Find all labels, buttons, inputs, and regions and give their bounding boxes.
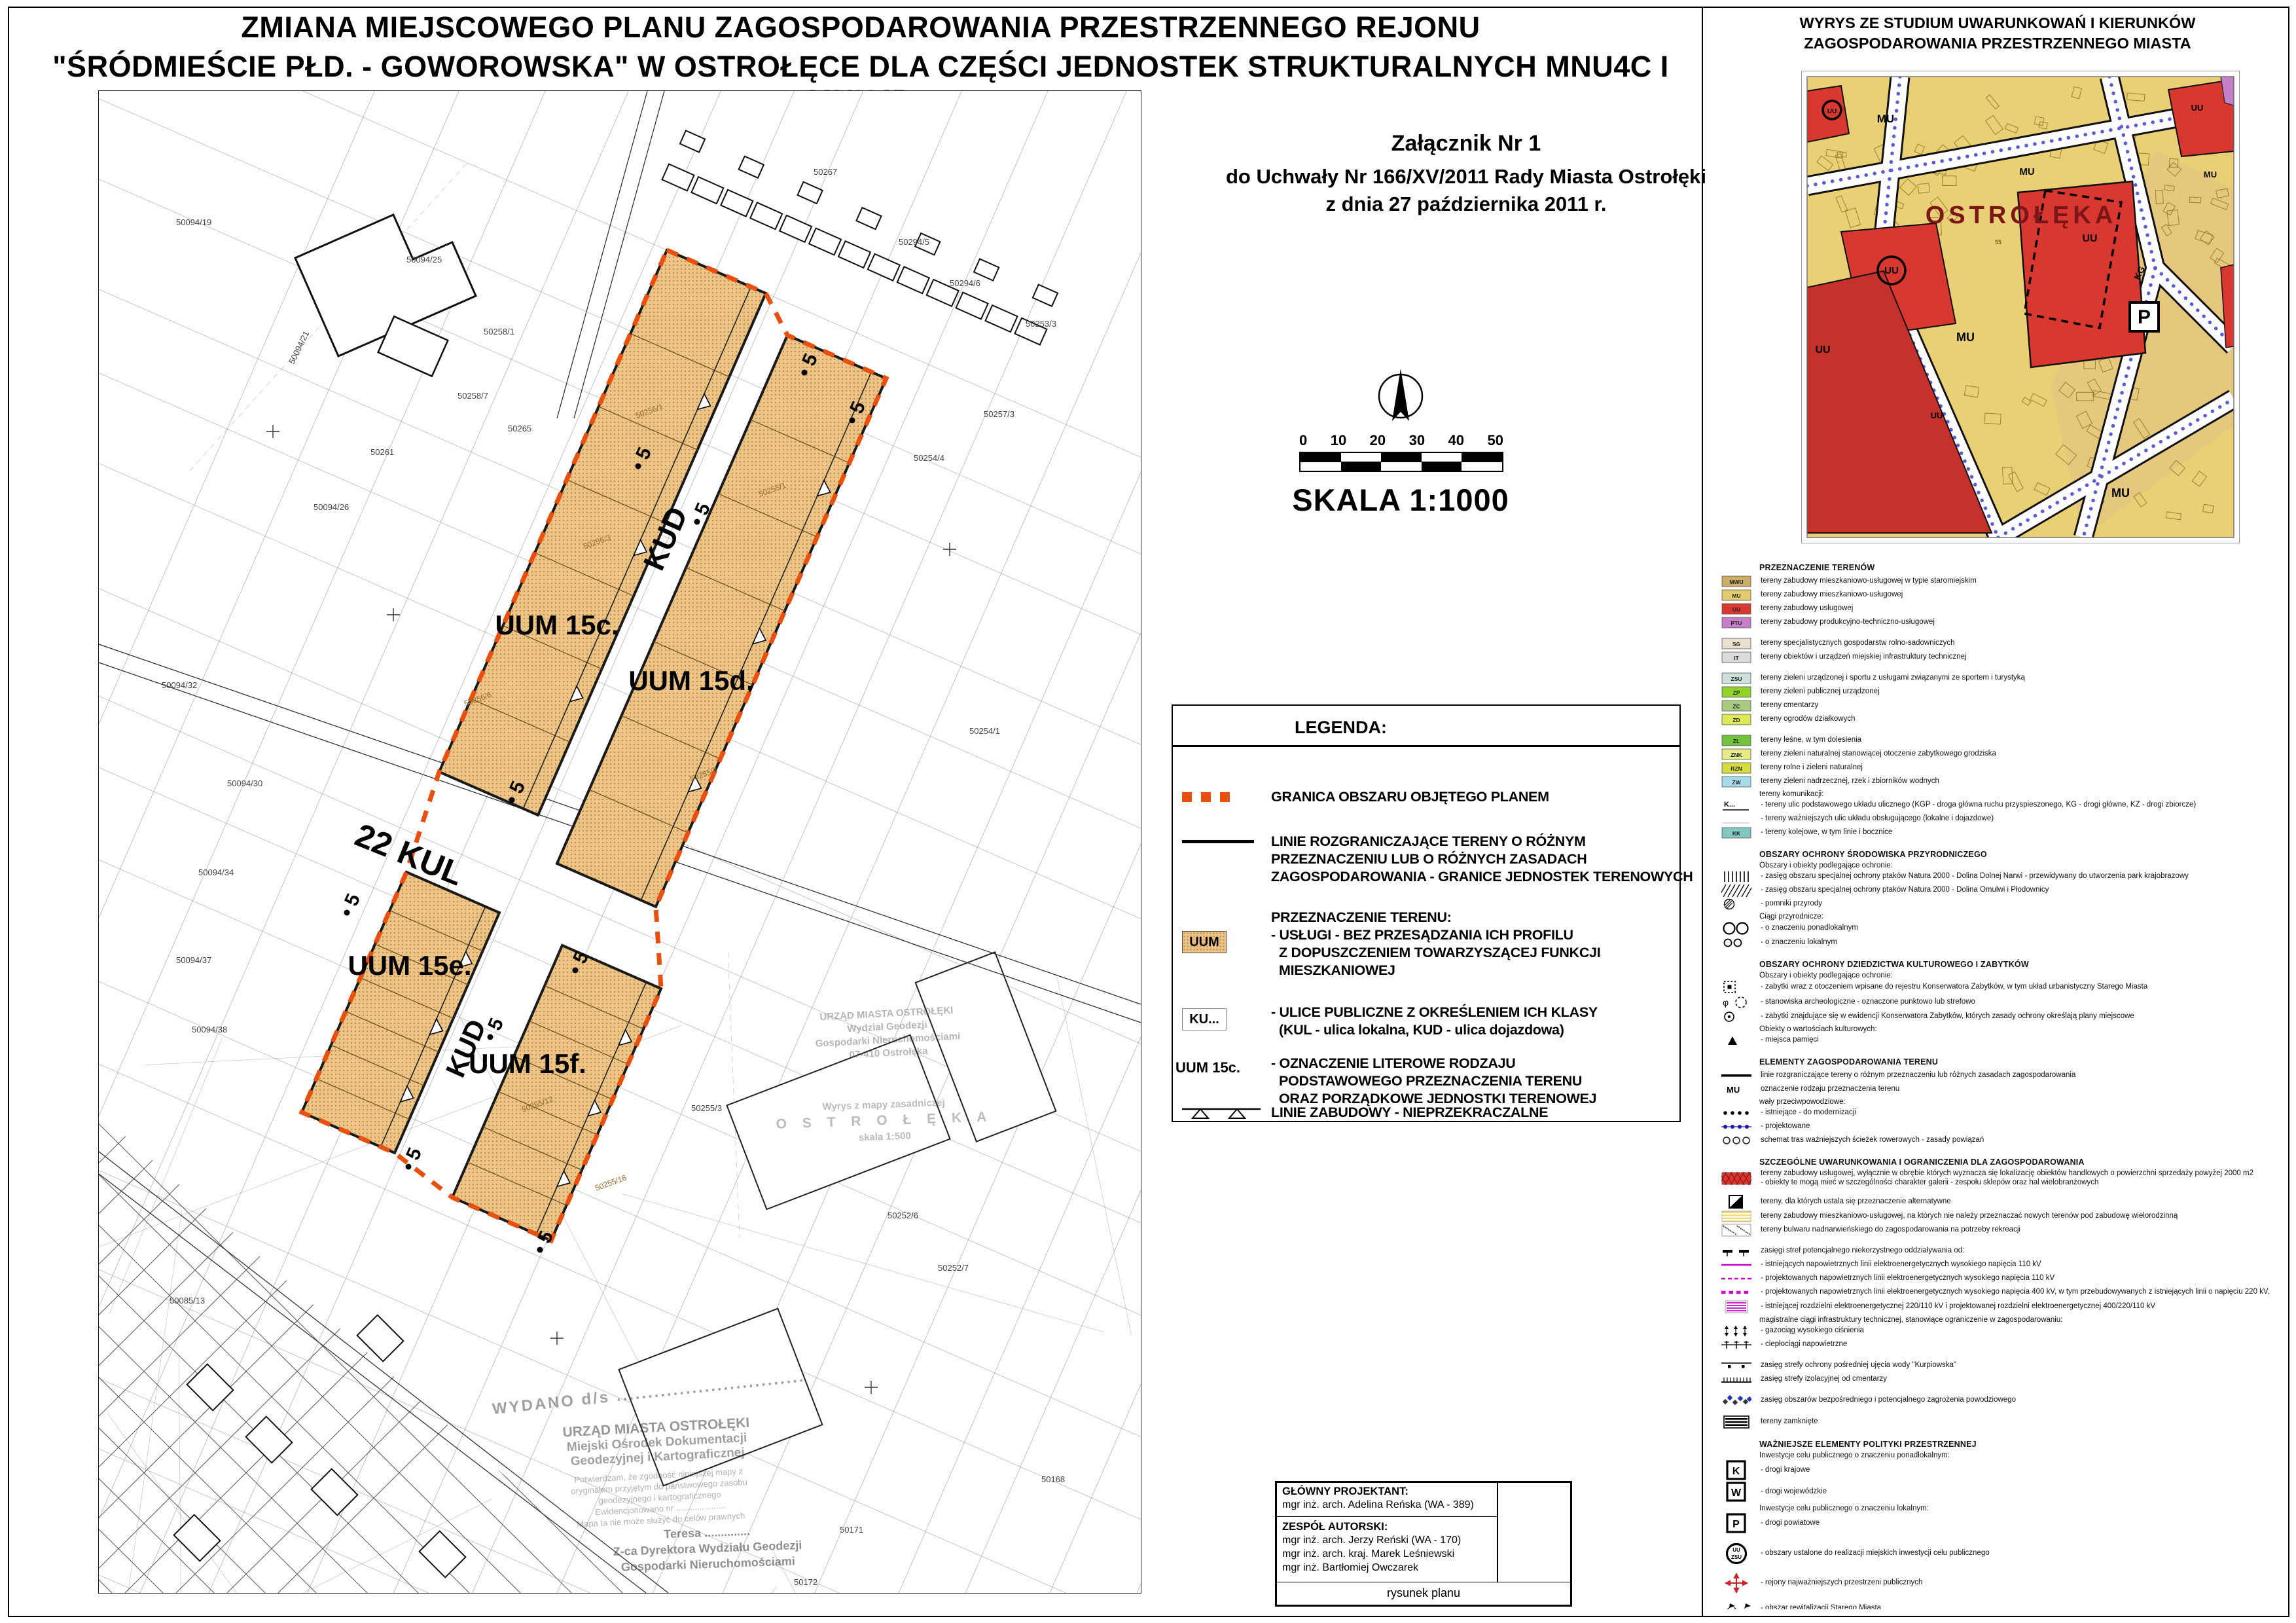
studium-legend-heading: PRZEZNACZENIE TERENÓW: [1759, 563, 2291, 572]
parcel-number: 50094/25: [406, 255, 442, 264]
box-icon: ZD: [1720, 713, 1754, 726]
studium-legend-note: Inwestycje celu publicznego o znaczeniu …: [1759, 1504, 2291, 1512]
studium-legend-label: - pomniki przyrody: [1754, 900, 2291, 909]
studium-legend-label: zasięg strefy ochrony pośredniej ujęcia …: [1754, 1361, 2291, 1370]
svg-text:IT: IT: [1734, 655, 1739, 661]
studium-legend-item: zasięgi stref potencjalnego niekorzystne…: [1720, 1245, 2291, 1258]
studium-legend-item: - tereny ważniejszych ulic układu obsług…: [1720, 812, 2291, 826]
svg-text:W: W: [1731, 1487, 1742, 1499]
title-line-1: ZMIANA MIEJSCOWEGO PLANU ZAGOSPODAROWANI…: [39, 10, 1682, 45]
studium-legend-item: schemat tras ważniejszych ścieżek rowero…: [1720, 1134, 2291, 1147]
designer-box-divider: [1497, 1483, 1498, 1582]
studium-legend-item: ZSUtereny zieleni urządzonej i sportu z …: [1720, 672, 2291, 685]
author-name: mgr inż. arch. Jerzy Reński (WA - 170): [1282, 1533, 1492, 1547]
svg-text:ZL: ZL: [1733, 738, 1740, 744]
scale-bar-segments: [1299, 452, 1503, 472]
parcel-number: 50094/38: [192, 1025, 227, 1034]
studium-legend-item: - projektowane: [1720, 1120, 2291, 1133]
studium-legend-item: MWUtereny zabudowy mieszkaniowo-usługowe…: [1720, 575, 2291, 588]
studium-legend-item: - o znaczeniu lokalnym: [1720, 936, 2291, 949]
parcel-number: 50094/30: [227, 778, 262, 788]
dividing-line-icon: [1182, 840, 1264, 843]
studium-legend-label: tereny zabudowy mieszkaniowo-usługowej w…: [1754, 577, 2291, 586]
cbig-icon: [1720, 921, 1754, 936]
evid-icon: [1720, 1010, 1754, 1023]
author-team-title: ZESPÓŁ AUTORSKI:: [1282, 1521, 1492, 1533]
legend-item-ku: - ULICE PUBLICZNE Z OKREŚLENIEM ICH KLAS…: [1271, 1004, 1598, 1039]
legend-line: - USŁUGI - BEZ PRZESĄDZANIA ICH PROFILU: [1271, 926, 1600, 944]
dotsb-icon: [1720, 1106, 1754, 1120]
studium-legend-item: zasięg strefy izolacyjnej od cmentarzy: [1720, 1373, 2291, 1386]
studium-legend-label: tereny leśne, w tym dolesienia: [1754, 736, 2291, 745]
studium-legend-item: - zabytki znajdujące się w ewidencji Kon…: [1720, 1010, 2291, 1023]
studium-legend-label: tereny zieleni urządzonej i sportu z usł…: [1754, 674, 2291, 683]
scale-bar: 0 10 20 30 40 50: [1299, 432, 1503, 472]
studium-legend-heading: ELEMENTY ZAGOSPODAROWANIA TERENU: [1759, 1057, 2291, 1067]
flood-icon: [1720, 1394, 1754, 1407]
studium-legend-label: - drogi wojewódzkie: [1754, 1487, 2291, 1497]
studium-legend-label: zasięg strefy izolacyjnej od cmentarzy: [1754, 1375, 2291, 1384]
ku-street-icon: KU...: [1182, 1008, 1264, 1030]
studium-legend-note: magistralne ciągi infrastruktury technic…: [1759, 1316, 2291, 1324]
studium-legend-item: ZPtereny zieleni publicznej urządzonej: [1720, 685, 2291, 699]
attachment-note: Załącznik Nr 1 do Uchwały Nr 166/XV/2011…: [1185, 131, 1748, 218]
svg-text:SG: SG: [1732, 641, 1741, 647]
studium-legend-label: - tereny ulic podstawowego układu uliczn…: [1754, 801, 2291, 810]
parcel-number: 50265: [508, 424, 531, 433]
parcel-number: 50252/7: [938, 1263, 969, 1273]
designer-box: GŁÓWNY PROJEKTANT: mgr inż. arch. Adelin…: [1275, 1481, 1572, 1607]
studium-map-label: 55: [1995, 239, 2001, 246]
studium-legend-label: - istniejących napowietrznych linii elek…: [1754, 1260, 2291, 1269]
svg-text:K: K: [1732, 1466, 1740, 1477]
kline-icon: K...: [1720, 799, 1754, 812]
zone-label: UUM 15e.: [348, 950, 471, 981]
studium-legend-item: - zasięg obszaru specjalnej ochrony ptak…: [1720, 884, 2291, 897]
legend-line: (KUL - ulica lokalna, KUD - ulica dojazd…: [1271, 1021, 1598, 1039]
svg-text:MU: MU: [1727, 1085, 1740, 1095]
legend-line: MIESZKANIOWEJ: [1271, 962, 1600, 979]
box-icon: MU: [1720, 589, 1754, 602]
mbdash-icon: [1720, 1286, 1754, 1299]
building-line-icon: [1182, 1104, 1264, 1121]
studium-legend-label: - rejony najważniejszych przestrzeni pub…: [1754, 1578, 2291, 1588]
studium-legend-label: linie rozgraniczające tereny o różnym pr…: [1754, 1071, 2291, 1080]
studium-legend-item: P- drogi powiatowe: [1720, 1513, 2291, 1534]
studium-legend-label: tereny zieleni publicznej urządzonej: [1754, 687, 2291, 697]
studium-legend-item: - obszar rewitalizacji Starego Miasta: [1720, 1601, 2291, 1609]
zone-code-label: UUM 15c.: [1175, 1059, 1240, 1076]
pomnik-icon: [1720, 898, 1754, 911]
studium-legend-label: - obszar rewitalizacji Starego Miasta: [1754, 1604, 2291, 1609]
vbars-icon: [1720, 870, 1754, 883]
legend-title: LEGENDA:: [1295, 718, 1387, 738]
studium-map-label: MU: [2111, 486, 2130, 500]
legend-line: LINIE ROZGRANICZAJĄCE TERENY O RÓŻNYM: [1271, 833, 1693, 850]
svg-text:UU: UU: [1732, 1547, 1740, 1553]
arch-icon: φ: [1720, 995, 1754, 1010]
svg-text:ZP: ZP: [1733, 689, 1740, 696]
box-icon: ZW: [1720, 775, 1754, 788]
box-icon: ZL: [1720, 734, 1754, 747]
studium-legend-heading: OBSZARY OCHRONY DZIEDZICTWA KULTUROWEGO …: [1759, 960, 2291, 969]
studium-legend-label: tereny zieleni naturalnej stanowiącej ot…: [1754, 750, 2291, 759]
studium-map-label: MU: [1956, 331, 1975, 344]
heat-icon: [1720, 1338, 1754, 1351]
parcel-number: 50294/5: [899, 237, 929, 247]
csmall-icon: [1720, 936, 1754, 949]
studium-legend-label: - zabytki znajdujące się w ewidencji Kon…: [1754, 1012, 2291, 1021]
studium-legend-item: K...- tereny ulic podstawowego układu ul…: [1720, 799, 2291, 812]
author-name: mgr inż. arch. kraj. Marek Leśniewski: [1282, 1547, 1492, 1561]
chief-designer-title: GŁÓWNY PROJEKTANT:: [1282, 1486, 1492, 1498]
author-name: mgr inż. Bartłomiej Owczarek: [1282, 1561, 1492, 1575]
studium-legend-label: - gazociąg wysokiego ciśnienia: [1754, 1326, 2291, 1336]
attachment-line-3: z dnia 27 października 2011 r.: [1185, 191, 1748, 218]
parcel-number: 50257/3: [984, 409, 1014, 419]
zone-uum-15e: [302, 872, 499, 1153]
parcel-number: 50261: [370, 447, 394, 457]
scale-tick: 30: [1409, 432, 1425, 449]
boxletter-icon: W: [1720, 1482, 1754, 1503]
studium-legend-item: ITtereny obiektów i urządzeń miejskiej i…: [1720, 651, 2291, 664]
legend-item-uum: PRZEZNACZENIE TERENU: - USŁUGI - BEZ PRZ…: [1271, 909, 1600, 979]
studium-legend: PRZEZNACZENIE TERENÓWMWUtereny zabudowy …: [1720, 553, 2291, 1609]
studium-legend-label: tereny rolne i zieleni naturalnej: [1754, 763, 2291, 773]
box-icon: SG: [1720, 637, 1754, 650]
chief-designer: GŁÓWNY PROJEKTANT: mgr inż. arch. Adelin…: [1277, 1483, 1497, 1517]
mline-icon: [1720, 1258, 1754, 1271]
parcel-number: 50172: [794, 1577, 817, 1587]
studium-legend-item: K- drogi krajowe: [1720, 1460, 2291, 1481]
legend-divider: [1173, 745, 1679, 747]
mdash-icon: [1720, 1272, 1754, 1285]
box-icon: UU: [1720, 602, 1754, 615]
setback-distance-marker: 5: [691, 500, 715, 519]
studium-legend-note: Obszary i obiekty podlegające ochronie:: [1759, 862, 2291, 869]
box-icon: PTU: [1720, 616, 1754, 629]
studium-map-label: UU: [2191, 103, 2204, 113]
studium-legend-item: PTUtereny zabudowy produkcyjno-techniczn…: [1720, 616, 2291, 629]
parcel-number: 50094/26: [314, 502, 349, 512]
svg-text:φ: φ: [1723, 997, 1729, 1008]
studium-legend-item: - projektowanych napowietrznych linii el…: [1720, 1286, 2291, 1299]
svg-text:ZW: ZW: [1732, 779, 1741, 786]
parcel-number: 50252/6: [888, 1211, 918, 1220]
box-icon: ZSU: [1720, 672, 1754, 685]
studium-legend-label: - projektowane: [1754, 1122, 2291, 1131]
thline-icon: [1720, 1069, 1754, 1082]
gas-icon: [1720, 1324, 1754, 1338]
boxletter-icon: P: [1720, 1513, 1754, 1534]
studium-legend-item: RZNtereny rolne i zieleni naturalnej: [1720, 761, 2291, 775]
studium-legend-item: MUtereny zabudowy mieszkaniowo-usługowej: [1720, 589, 2291, 602]
svg-text:KK: KK: [1732, 830, 1741, 837]
zone-label: UUM 15d.: [628, 665, 753, 696]
parcel-number: 50254/1: [969, 726, 1000, 736]
scale-tick: 50: [1487, 432, 1503, 449]
box-icon: MWU: [1720, 575, 1754, 588]
box-icon: ZP: [1720, 685, 1754, 699]
parcel-number: 50254/4: [914, 453, 944, 463]
redhatch-icon: [1720, 1172, 1754, 1185]
studium-legend-label: tereny obiektów i urządzeń miejskiej inf…: [1754, 653, 2291, 662]
scale-tick: 0: [1299, 432, 1307, 449]
zone-code-icon: UUM 15c.: [1175, 1059, 1257, 1076]
studium-legend-label: - ciepłociągi napowietrzne: [1754, 1340, 2291, 1349]
studium-title-line-2: ZAGOSPODAROWANIA PRZESTRZENNEGO MIASTA: [1713, 33, 2282, 54]
parcel-number: 50255/3: [691, 1103, 722, 1113]
studium-title: WYRYS ZE STUDIUM UWARUNKOWAŃ I KIERUNKÓW…: [1713, 13, 2282, 54]
studium-map-label: MU: [2019, 166, 2034, 177]
studium-legend-label: oznaczenie rodzaju przeznaczenia terenu: [1754, 1085, 2291, 1094]
waterline-icon: [1720, 1359, 1754, 1372]
studium-legend-label: - drogi krajowe: [1754, 1466, 2291, 1475]
studium-legend-label: tereny specjalistycznych gospodarstw rol…: [1754, 639, 2291, 648]
svg-text:PTU: PTU: [1731, 620, 1742, 627]
studium-map-label: OSTROŁĘKA: [1926, 202, 2117, 229]
svg-text:UU: UU: [1732, 606, 1740, 613]
studium-legend-label: - obszary ustalone do realizacji miejski…: [1754, 1549, 2291, 1558]
zone-label: UUM 15f.: [469, 1048, 586, 1079]
studium-legend-item: - o znaczeniu ponadlokalnym: [1720, 921, 2291, 936]
closed-icon: [1720, 1415, 1754, 1429]
studium-legend-item: - gazociąg wysokiego ciśnienia: [1720, 1324, 2291, 1338]
ystripes-icon: [1720, 1210, 1754, 1223]
legend-item-building-line: LINIE ZABUDOWY - NIEPRZEKRACZALNE: [1271, 1104, 1548, 1122]
studium-legend-label: tereny cmentarzy: [1754, 701, 2291, 710]
studium-legend-item: tereny zamknięte: [1720, 1415, 2291, 1429]
tri-icon: [1720, 1034, 1754, 1047]
studium-legend-item: - rejony najważniejszych przestrzeni pub…: [1720, 1573, 2291, 1593]
studium-legend-label: - projektowanych napowietrznych linii el…: [1754, 1288, 2291, 1297]
scale-tick: 40: [1448, 432, 1464, 449]
zone-uum-15f: [452, 945, 661, 1241]
studium-legend-item: ZWtereny zieleni nadrzecznej, rzek i zbi…: [1720, 775, 2291, 788]
altsq-icon: [1720, 1195, 1754, 1209]
studium-legend-label: - projektowanych napowietrznych linii el…: [1754, 1274, 2291, 1283]
legend-line: PRZEZNACZENIU LUB O RÓŻNYCH ZASADACH: [1271, 850, 1693, 868]
studium-legend-item: - zasięg obszaru specjalnej ochrony ptak…: [1720, 870, 2291, 883]
box-icon: ZNK: [1720, 748, 1754, 761]
zone-label: UUM 15c.: [495, 610, 619, 640]
studium-legend-item: MUoznaczenie rodzaju przeznaczenia teren…: [1720, 1083, 2291, 1096]
parcel-number: 50094/34: [198, 867, 234, 877]
studium-legend-label: tereny ogrodów działkowych: [1754, 715, 2291, 724]
studium-legend-heading: OBSZARY OCHRONY ŚRODOWISKA PRZYRODNICZEG…: [1759, 850, 2291, 859]
parcel-number: 50258/7: [457, 391, 488, 401]
plan-map-canvas: 50094/1950094/2550094/2150094/2650094/32…: [99, 91, 1141, 1593]
studium-legend-note: tereny komunikacji:: [1759, 790, 2291, 798]
legend-line: ZAGOSPODAROWANIA - GRANICE JEDNOSTEK TER…: [1271, 868, 1693, 886]
dotsq-icon: [1720, 980, 1754, 994]
panel-divider: [1702, 7, 1703, 1616]
author-team: ZESPÓŁ AUTORSKI: mgr inż. arch. Jerzy Re…: [1277, 1518, 1497, 1581]
cemline-icon: [1720, 1373, 1754, 1386]
dbars-icon: [1720, 884, 1754, 897]
studium-legend-item: ZLtereny leśne, w tym dolesienia: [1720, 734, 2291, 747]
scale-tick: 10: [1331, 432, 1346, 449]
plan-sheet: ZMIANA MIEJSCOWEGO PLANU ZAGOSPODAROWANI…: [0, 0, 2296, 1623]
uum-swatch: UUM: [1182, 931, 1227, 953]
studium-legend-item: - projektowanych napowietrznych linii el…: [1720, 1272, 2291, 1285]
studium-map-label: MU: [2204, 170, 2217, 179]
studium-legend-item: ZNKtereny zieleni naturalnej stanowiącej…: [1720, 748, 2291, 761]
studium-legend-item: - zabytki wraz z otoczeniem wpisane do r…: [1720, 980, 2291, 994]
studium-map-label: UU: [2082, 233, 2097, 244]
studium-legend-label: tereny zabudowy mieszkaniowo-usługowej, …: [1754, 1212, 2291, 1221]
svg-text:MWU: MWU: [1729, 579, 1743, 585]
studium-map-label: UU: [1827, 108, 1837, 115]
ku-swatch: KU...: [1182, 1008, 1227, 1030]
legend-line: Z DOPUSZCZENIEM TOWARZYSZĄCEJ FUNKCJI: [1271, 944, 1600, 962]
svg-text:ZSU: ZSU: [1731, 676, 1742, 682]
parcel-number: 50255/16: [594, 1173, 628, 1192]
studium-map-canvas: MUMUMUMUMUUUUUUUUUOSTROŁĘKAKGUUUUP55: [1802, 71, 2239, 543]
studium-legend-note: Inwestycje celu publicznego o znaczeniu …: [1759, 1451, 2291, 1459]
box-icon: RZN: [1720, 761, 1754, 775]
parcel-number: 50085/13: [170, 1296, 205, 1305]
legend-line: - OZNACZENIE LITEROWE RODZAJU: [1271, 1055, 1596, 1072]
studium-legend-item: - istniejących napowietrznych linii elek…: [1720, 1258, 2291, 1271]
parcel-number: 50253/3: [1026, 319, 1056, 329]
studium-legend-label: - miejsca pamięci: [1754, 1036, 2291, 1045]
studium-title-line-1: WYRYS ZE STUDIUM UWARUNKOWAŃ I KIERUNKÓW: [1713, 13, 2282, 33]
blankline-icon: [1720, 812, 1754, 826]
dottex-icon: [1720, 1224, 1754, 1237]
bike-icon: [1720, 1134, 1754, 1147]
studium-legend-label: tereny, dla których ustala się przeznacz…: [1754, 1197, 2291, 1207]
studium-legend-item: UUtereny zabudowy usługowej: [1720, 602, 2291, 615]
studium-map-label: P: [2138, 306, 2151, 328]
studium-legend-label: - zasięg obszaru specjalnej ochrony ptak…: [1754, 886, 2291, 895]
studium-map-label: UU: [1884, 265, 1899, 276]
studium-legend-note: wały przeciwpowodziowe:: [1759, 1098, 2291, 1106]
studium-legend-item: - miejsca pamięci: [1720, 1034, 2291, 1047]
studium-legend-label: - istniejące - do modernizacji: [1754, 1108, 2291, 1118]
studium-legend-label: - stanowiska archeologiczne - oznaczone …: [1754, 998, 2291, 1007]
studium-legend-label: tereny zabudowy produkcyjno-techniczno-u…: [1754, 618, 2291, 627]
parcel-number: 50094/37: [176, 955, 211, 965]
studium-legend-item: - pomniki przyrody: [1720, 898, 2291, 911]
studium-legend-label: - o znaczeniu ponadlokalnym: [1754, 924, 2291, 933]
studium-legend-label: schemat tras ważniejszych ścieżek rowero…: [1754, 1136, 2291, 1145]
street-grid: [99, 1099, 776, 1593]
studium-legend-heading: WAŻNIEJSZE ELEMENTY POLITYKI PRZESTRZENN…: [1759, 1440, 2291, 1449]
legend-item-lines: LINIE ROZGRANICZAJĄCE TERENY O RÓŻNYM PR…: [1271, 833, 1693, 886]
studium-legend-label: - o znaczeniu lokalnym: [1754, 938, 2291, 947]
svg-text:ZNK: ZNK: [1731, 752, 1742, 758]
studium-legend-item: ZCtereny cmentarzy: [1720, 699, 2291, 712]
studium-legend-item: - istniejącej rozdzielni elektroenergety…: [1720, 1300, 2291, 1314]
chief-designer-name: mgr inż. arch. Adelina Reńska (WA - 389): [1282, 1498, 1492, 1512]
studium-legend-label: tereny bulwaru nadnarwieńskiego do zagos…: [1754, 1226, 2291, 1235]
svg-text:P: P: [1732, 1519, 1740, 1530]
studium-legend-item: - istniejące - do modernizacji: [1720, 1106, 2291, 1120]
tickdash-icon: [1720, 1245, 1754, 1258]
studium-map-label: MU: [1877, 113, 1894, 125]
legend-box: LEGENDA: GRANICA OBSZARU OBJĘTEGO PLANEM…: [1172, 704, 1681, 1122]
redcross-icon: [1720, 1573, 1754, 1593]
mstripes-icon: [1720, 1300, 1754, 1314]
parcel-number: 50294/6: [950, 278, 980, 288]
studium-legend-label: tereny zabudowy mieszkaniowo-usługowej: [1754, 591, 2291, 600]
studium-legend-item: - ciepłociągi napowietrzne: [1720, 1338, 2291, 1351]
studium-legend-item: KK- tereny kolejowe, w tym linie i boczn…: [1720, 826, 2291, 839]
legend-line: PODSTAWOWEGO PRZEZNACZENIA TERENU: [1271, 1072, 1596, 1090]
studium-legend-label: - zasięg obszaru specjalnej ochrony ptak…: [1754, 872, 2291, 881]
studium-legend-label: zasięgi stref potencjalnego niekorzystne…: [1754, 1247, 2291, 1256]
studium-legend-note: Obszary i obiekty podlegające ochronie:: [1759, 972, 2291, 979]
attachment-line-2: do Uchwały Nr 166/XV/2011 Rady Miasta Os…: [1185, 163, 1748, 191]
studium-legend-label: tereny zieleni nadrzecznej, rzek i zbior…: [1754, 777, 2291, 786]
mutext-icon: MU: [1720, 1083, 1754, 1096]
studium-legend-label: - drogi powiatowe: [1754, 1519, 2291, 1528]
parcel-number: 50094/21: [287, 329, 311, 365]
plan-map: 50094/1950094/2550094/2150094/2650094/32…: [98, 90, 1141, 1594]
scale-tick: 20: [1370, 432, 1386, 449]
studium-legend-label: tereny zabudowy usługowej, wyłącznie w o…: [1754, 1169, 2291, 1187]
parcel-number: 50171: [840, 1525, 863, 1535]
studium-legend-note: Ciągi przyrodnicze:: [1759, 913, 2291, 921]
studium-legend-item: W- drogi wojewódzkie: [1720, 1482, 2291, 1503]
svg-text:K...: K...: [1724, 801, 1735, 809]
uum-zone-icon: UUM: [1182, 931, 1264, 953]
studium-legend-item: zasięg strefy ochrony pośredniej ujęcia …: [1720, 1359, 2291, 1372]
studium-legend-label: zasięg obszarów bezpośredniego i potencj…: [1754, 1396, 2291, 1405]
studium-legend-item: UUZSU- obszary ustalone do realizacji mi…: [1720, 1542, 2291, 1565]
studium-legend-item: φ- stanowiska archeologiczne - oznaczone…: [1720, 995, 2291, 1010]
studium-legend-item: zasięg obszarów bezpośredniego i potencj…: [1720, 1394, 2291, 1407]
studium-legend-item: linie rozgraniczające tereny o różnym pr…: [1720, 1069, 2291, 1082]
plan-boundary-icon: [1182, 790, 1264, 804]
setback-distance-marker: 5: [340, 890, 365, 909]
studium-legend-label: tereny zamknięte: [1754, 1417, 2291, 1427]
studium-legend-item: tereny zabudowy usługowej, wyłącznie w o…: [1720, 1169, 2291, 1187]
svg-text:ZD: ZD: [1732, 717, 1740, 723]
studium-legend-item: tereny bulwaru nadnarwieńskiego do zagos…: [1720, 1224, 2291, 1237]
parcel-number: 50267: [814, 167, 837, 177]
studium-legend-item: tereny zabudowy mieszkaniowo-usługowej, …: [1720, 1210, 2291, 1223]
box-icon: KK: [1720, 826, 1754, 839]
studium-legend-label: - tereny kolejowe, w tym linie i bocznic…: [1754, 828, 2291, 837]
box-icon: IT: [1720, 651, 1754, 664]
studium-legend-note: Obiekty o wartościach kulturowych:: [1759, 1025, 2291, 1033]
studium-legend-label: - zabytki wraz z otoczeniem wpisane do r…: [1754, 983, 2291, 992]
studium-map: MUMUMUMUMUUUUUUUUUOSTROŁĘKAKGUUUUP55: [1801, 71, 2240, 543]
legend-item-boundary: GRANICA OBSZARU OBJĘTEGO PLANEM: [1271, 788, 1549, 806]
legend-line: - ULICE PUBLICZNE Z OKREŚLENIEM ICH KLAS…: [1271, 1004, 1598, 1021]
attachment-line-1: Załącznik Nr 1: [1185, 131, 1748, 156]
box-icon: ZC: [1720, 699, 1754, 712]
parcel-number: 50094/32: [162, 680, 197, 690]
studium-legend-label: - tereny ważniejszych ulic układu obsług…: [1754, 814, 2291, 824]
drawing-caption: rysunek planu: [1277, 1582, 1570, 1604]
studium-legend-item: ZDtereny ogrodów działkowych: [1720, 713, 2291, 726]
scale-ticks: 0 10 20 30 40 50: [1299, 432, 1503, 449]
svg-text:RZN: RZN: [1731, 765, 1742, 772]
studium-map-label: UU: [1815, 344, 1830, 356]
studium-legend-heading: SZCZEGÓLNE UWARUNKOWANIA I OGRANICZENIA …: [1759, 1158, 2291, 1167]
boxletter-icon: K: [1720, 1460, 1754, 1481]
scale-label: SKALA 1:1000: [1247, 482, 1554, 518]
studium-legend-label: tereny zabudowy usługowej: [1754, 604, 2291, 613]
studium-legend-item: tereny, dla których ustala się przeznacz…: [1720, 1195, 2291, 1209]
parcel-number: 50258/1: [484, 327, 514, 337]
north-arrow-icon: [1369, 363, 1432, 429]
parcel-number: 50094/19: [176, 217, 211, 227]
legend-item-code: - OZNACZENIE LITEROWE RODZAJU PODSTAWOWE…: [1271, 1055, 1596, 1108]
